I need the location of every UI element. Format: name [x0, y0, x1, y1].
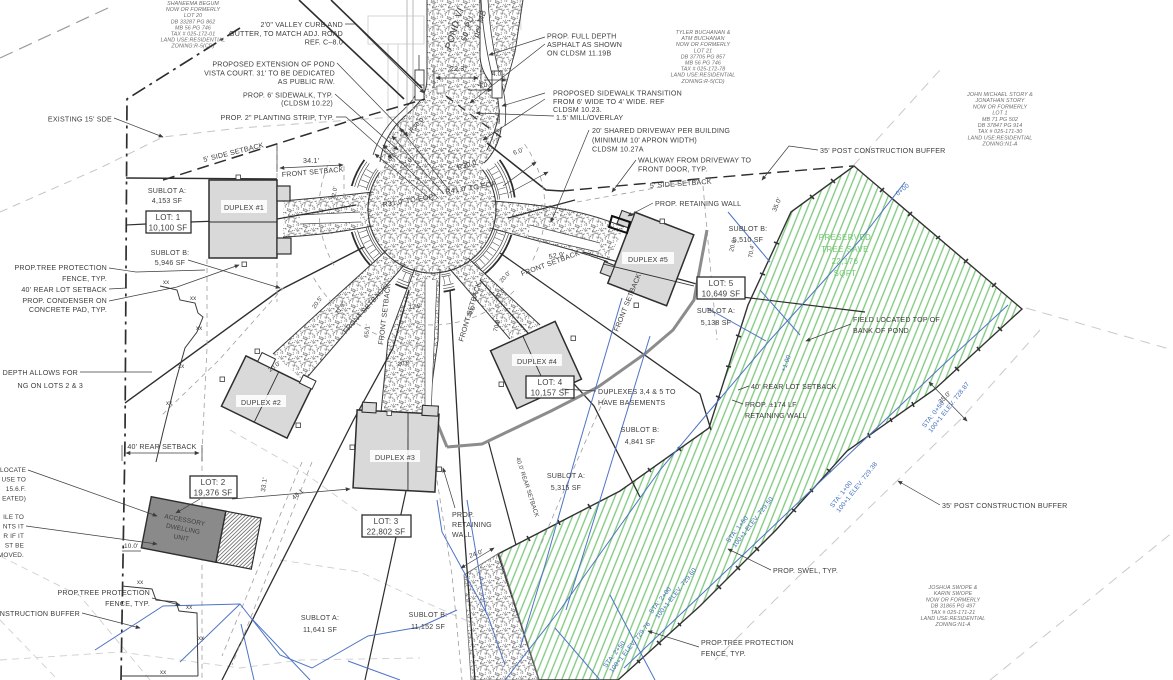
svg-text:ON CLDSM 11.19B: ON CLDSM 11.19B	[547, 50, 611, 58]
svg-text:CLDSM 10.23.: CLDSM 10.23.	[553, 106, 602, 114]
svg-text:SHANEEMA BEGUM: SHANEEMA BEGUM	[167, 1, 219, 7]
svg-text:SQFT: SQFT	[834, 269, 857, 278]
svg-text:JOSHUA SWOPE &: JOSHUA SWOPE &	[928, 585, 978, 591]
svg-text:LOT 1: LOT 1	[992, 111, 1007, 117]
svg-text:PROP.TREE PROTECTION: PROP.TREE PROTECTION	[57, 589, 150, 597]
svg-text:PROP. RETAINING WALL: PROP. RETAINING WALL	[655, 200, 741, 208]
svg-text:FIELD LOCATED TOP OF: FIELD LOCATED TOP OF	[853, 316, 941, 324]
svg-text:FRONT DOOR, TYP.: FRONT DOOR, TYP.	[638, 166, 707, 174]
svg-text:ST BE: ST BE	[5, 543, 24, 550]
svg-text:PROP.: PROP.	[452, 511, 474, 519]
svg-text:DUPLEX #1: DUPLEX #1	[224, 204, 264, 212]
svg-text:4,153 SF: 4,153 SF	[152, 197, 183, 205]
svg-text:11,152 SF: 11,152 SF	[411, 623, 445, 631]
svg-text:DUPLEX #5: DUPLEX #5	[628, 256, 668, 264]
svg-text:R IF IT: R IF IT	[3, 533, 24, 540]
svg-text:NTS IT: NTS IT	[3, 524, 24, 531]
svg-text:TAX # 025-171-21: TAX # 025-171-21	[931, 610, 976, 616]
svg-text:NOW OR FORMERLY: NOW OR FORMERLY	[676, 42, 731, 48]
svg-text:TAX # 025-172-78: TAX # 025-172-78	[681, 67, 726, 73]
svg-text:4.0': 4.0'	[492, 71, 503, 78]
svg-text:xx: xx	[163, 280, 169, 286]
svg-text:PROP. CONDENSER ON: PROP. CONDENSER ON	[22, 297, 107, 305]
svg-text:xx: xx	[166, 401, 172, 407]
svg-text:USE TO: USE TO	[2, 477, 26, 484]
svg-text:SUBLOT A:: SUBLOT A:	[697, 307, 735, 315]
svg-text:FENCE, TYP.: FENCE, TYP.	[701, 650, 746, 658]
svg-text:ATM BUCHANAN: ATM BUCHANAN	[680, 36, 724, 42]
svg-text:TREE SAVE: TREE SAVE	[821, 245, 869, 254]
svg-text:LOT: 5: LOT: 5	[709, 279, 734, 288]
svg-text:PROP.TREE PROTECTION: PROP.TREE PROTECTION	[701, 639, 794, 647]
svg-text:WALL: WALL	[452, 531, 472, 539]
svg-text:5,315 SF: 5,315 SF	[551, 484, 582, 492]
svg-text:22,176: 22,176	[832, 257, 859, 266]
svg-text:2ʹ0" VALLEY CURB AND: 2ʹ0" VALLEY CURB AND	[260, 21, 343, 29]
svg-text:10,649 SF: 10,649 SF	[702, 290, 741, 299]
svg-text:RETAINING: RETAINING	[452, 521, 492, 529]
svg-text:xx: xx	[186, 605, 192, 611]
svg-text:CLDSM 10.27A: CLDSM 10.27A	[592, 146, 644, 154]
svg-text:MB 56 PG 746: MB 56 PG 746	[685, 61, 721, 67]
svg-text:PROP. 2" PLANTING STRIP, TYP.: PROP. 2" PLANTING STRIP, TYP.	[221, 114, 334, 122]
svg-text:DB 33287 PG 862: DB 33287 PG 862	[171, 19, 216, 25]
svg-text:DB 37847 PG 914: DB 37847 PG 914	[978, 123, 1023, 129]
svg-text:ZONING:R-5(CD): ZONING:R-5(CD)	[680, 79, 724, 85]
svg-text:34.1': 34.1'	[303, 157, 319, 165]
svg-text:TAX # 025-172-01: TAX # 025-172-01	[171, 32, 216, 38]
svg-text:PROP. SWEL, TYP.: PROP. SWEL, TYP.	[773, 567, 838, 575]
svg-text:DUPLEX #2: DUPLEX #2	[241, 399, 281, 407]
svg-text:DUPLEXES 3,4 & 5 TO: DUPLEXES 3,4 & 5 TO	[598, 388, 676, 396]
svg-text:10,157 SF: 10,157 SF	[531, 389, 570, 398]
svg-text:FENCE, TYP.: FENCE, TYP.	[105, 600, 150, 608]
svg-text:40' REAR SETBACK: 40' REAR SETBACK	[127, 443, 196, 451]
svg-text:22.3': 22.3'	[450, 65, 466, 73]
svg-text:LAND USE:RESIDENTIAL: LAND USE:RESIDENTIAL	[968, 135, 1033, 141]
svg-text:HAVE BASEMENTS: HAVE BASEMENTS	[598, 399, 665, 407]
svg-text:SUBLOT B:: SUBLOT B:	[729, 225, 768, 233]
svg-text:xx: xx	[190, 296, 196, 302]
svg-text:VISTA COURT. 31' TO BE DEDICAT: VISTA COURT. 31' TO BE DEDICATED	[204, 70, 335, 78]
svg-text:PRESERVED: PRESERVED	[819, 233, 871, 242]
svg-text:PROP. ±174 LF: PROP. ±174 LF	[745, 401, 797, 409]
svg-text:SUBLOT A:: SUBLOT A:	[148, 187, 186, 195]
svg-text:NOW OR FORMERLY: NOW OR FORMERLY	[973, 104, 1028, 110]
svg-text:LOT: 1: LOT: 1	[156, 213, 181, 222]
svg-text:SUBLOT B:: SUBLOT B:	[151, 249, 190, 257]
svg-text:19,376 SF: 19,376 SF	[194, 489, 233, 498]
svg-text:xx: xx	[137, 580, 143, 586]
svg-text:PROPOSED EXTENSION OF POND: PROPOSED EXTENSION OF POND	[212, 61, 335, 69]
svg-text:SUBLOT B:: SUBLOT B:	[409, 611, 448, 619]
svg-text:DB 37705 PG 857: DB 37705 PG 857	[681, 54, 726, 60]
svg-text:KARIN SWOPE: KARIN SWOPE	[934, 591, 973, 597]
svg-text:SUBLOT B:: SUBLOT B:	[621, 426, 660, 434]
svg-text:LOT 20: LOT 20	[184, 13, 202, 19]
svg-text:LAND USE:RESIDENTIAL: LAND USE:RESIDENTIAL	[161, 38, 226, 44]
svg-text:DB 31865 PG 497: DB 31865 PG 497	[931, 604, 976, 610]
svg-text:ZONING:N1-A: ZONING:N1-A	[934, 622, 971, 628]
svg-text:LOCATE: LOCATE	[0, 467, 26, 474]
svg-text:NG ON LOTS 2 & 3: NG ON LOTS 2 & 3	[18, 382, 84, 390]
svg-text:4,841 SF: 4,841 SF	[625, 438, 656, 446]
svg-text:FROM 6' WIDE TO 4' WIDE. REF: FROM 6' WIDE TO 4' WIDE. REF	[553, 98, 665, 106]
svg-text:ONSTRUCTION BUFFER: ONSTRUCTION BUFFER	[0, 610, 80, 618]
svg-text:35' POST CONSTRUCTION BUFFER: 35' POST CONSTRUCTION BUFFER	[820, 147, 945, 155]
svg-text:LAND USE:RESIDENTIAL: LAND USE:RESIDENTIAL	[671, 73, 736, 79]
svg-text:MB 71 PG 502: MB 71 PG 502	[982, 117, 1018, 123]
svg-text:LOT: 2: LOT: 2	[201, 478, 226, 487]
svg-text:5,138 SF: 5,138 SF	[701, 319, 732, 327]
svg-text:EATED): EATED)	[2, 496, 26, 503]
svg-text:40' REAR LOT SETBACK: 40' REAR LOT SETBACK	[751, 383, 837, 391]
svg-text:RETAINING WALL: RETAINING WALL	[745, 412, 807, 420]
svg-text:TAX # 025-171-30: TAX # 025-171-30	[978, 129, 1023, 135]
svg-text:22,802 SF: 22,802 SF	[367, 528, 406, 537]
svg-text:xx: xx	[196, 326, 202, 332]
svg-text:ILE TO: ILE TO	[3, 514, 24, 521]
svg-text:DUPLEX #3: DUPLEX #3	[375, 454, 415, 462]
svg-text:ZONING:N1-A: ZONING:N1-A	[981, 142, 1018, 148]
svg-text:xx: xx	[178, 364, 184, 370]
svg-text:PROPOSED SIDEWALK TRANSITION: PROPOSED SIDEWALK TRANSITION	[553, 90, 682, 98]
svg-text:PROP. 6' SIDEWALK, TYP.: PROP. 6' SIDEWALK, TYP.	[243, 91, 333, 99]
svg-text:20' SHARED DRIVEWAY PER BUILDI: 20' SHARED DRIVEWAY PER BUILDING	[592, 127, 730, 135]
svg-text:ASPHALT AS SHOWN: ASPHALT AS SHOWN	[547, 41, 622, 49]
svg-text:(CLDSM 10.22): (CLDSM 10.22)	[281, 100, 333, 108]
svg-text:DEPTH ALLOWS FOR: DEPTH ALLOWS FOR	[3, 369, 78, 377]
svg-text:DUPLEX #4: DUPLEX #4	[517, 358, 557, 366]
svg-text:LOT: 3: LOT: 3	[374, 517, 399, 526]
svg-text:WALKWAY FROM DRIVEWAY TO: WALKWAY FROM DRIVEWAY TO	[638, 157, 751, 165]
svg-text:15.6.F.: 15.6.F.	[6, 486, 26, 493]
svg-text:BANK OF POND: BANK OF POND	[853, 327, 909, 335]
svg-text:40' REAR LOT SETBACK: 40' REAR LOT SETBACK	[21, 286, 107, 294]
svg-text:TYLER BUCHANAN &: TYLER BUCHANAN &	[676, 30, 731, 36]
svg-text:MB 56 PG 746: MB 56 PG 746	[175, 25, 211, 31]
svg-text:10.0': 10.0'	[124, 543, 138, 550]
svg-text:SUBLOT A:: SUBLOT A:	[547, 472, 585, 480]
svg-text:xx: xx	[198, 636, 204, 642]
svg-text:NOW OR FORMERLY: NOW OR FORMERLY	[926, 597, 981, 603]
svg-text:35' POST CONSTRUCTION BUFFER: 35' POST CONSTRUCTION BUFFER	[942, 502, 1067, 510]
svg-text:REF. C–8.0: REF. C–8.0	[305, 39, 343, 47]
svg-text:(MINIMUM 10' APRON WIDTH): (MINIMUM 10' APRON WIDTH)	[592, 137, 697, 145]
svg-text:JONATHAN STORY: JONATHAN STORY	[975, 98, 1025, 104]
svg-text:LOT 21: LOT 21	[694, 48, 712, 54]
svg-text:LOT: 4: LOT: 4	[538, 378, 563, 387]
svg-text:SUBLOT A:: SUBLOT A:	[301, 614, 339, 622]
svg-text:FENCE, TYP.: FENCE, TYP.	[62, 275, 107, 283]
svg-text:xx: xx	[160, 670, 166, 676]
svg-text:1.5' MILL/OVERLAY: 1.5' MILL/OVERLAY	[556, 114, 623, 122]
svg-text:GUTTER, TO MATCH ADJ. ROAD: GUTTER, TO MATCH ADJ. ROAD	[229, 30, 343, 38]
svg-text:ZONING:R-5(CD): ZONING:R-5(CD)	[170, 44, 214, 50]
svg-text:MOVED.: MOVED.	[0, 552, 24, 559]
svg-text:5,946 SF: 5,946 SF	[155, 259, 186, 267]
svg-text:JOHN MICHAEL STORY &: JOHN MICHAEL STORY &	[966, 92, 1033, 98]
svg-text:AS PUBLIC R/W.: AS PUBLIC R/W.	[278, 78, 335, 86]
svg-text:NOW OR FORMERLY: NOW OR FORMERLY	[166, 7, 221, 13]
svg-text:11,641 SF: 11,641 SF	[303, 626, 337, 634]
svg-text:CONCRETE PAD, TYP.: CONCRETE PAD, TYP.	[29, 306, 107, 314]
svg-text:LAND USE:RESIDENTIAL: LAND USE:RESIDENTIAL	[921, 616, 986, 622]
svg-text:4.0: 4.0	[478, 82, 488, 89]
svg-text:10,100 SF: 10,100 SF	[149, 224, 188, 233]
svg-text:PROP.TREE PROTECTION: PROP.TREE PROTECTION	[14, 264, 107, 272]
svg-text:PROP. FULL DEPTH: PROP. FULL DEPTH	[547, 33, 616, 41]
svg-text:EXISTING 15' SDE: EXISTING 15' SDE	[48, 116, 112, 124]
